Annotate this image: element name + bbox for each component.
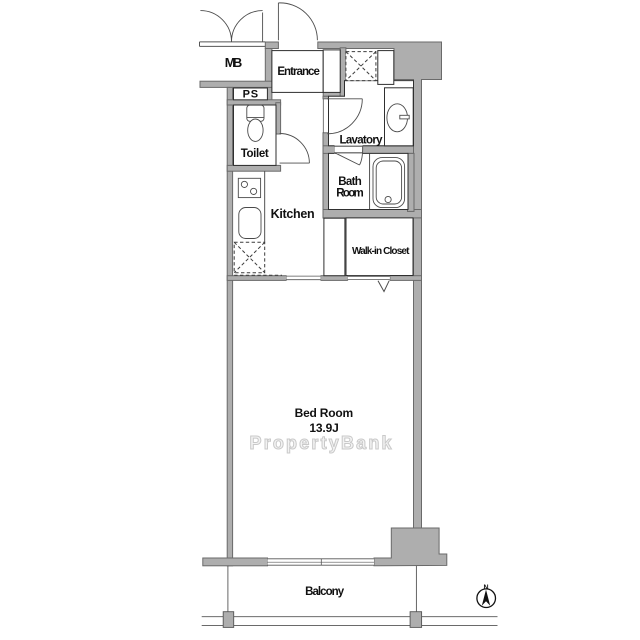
svg-text:PS: PS — [243, 89, 259, 101]
svg-text:Balcony: Balcony — [305, 586, 345, 598]
svg-text:Lavatory: Lavatory — [340, 135, 384, 147]
svg-text:Walk-in Closet: Walk-in Closet — [352, 246, 410, 257]
svg-text:Bed Room: Bed Room — [295, 406, 354, 420]
svg-text:Room: Room — [336, 187, 364, 199]
svg-text:Entrance: Entrance — [277, 66, 320, 78]
svg-text:13.9J: 13.9J — [309, 421, 339, 435]
svg-text:Kitchen: Kitchen — [271, 207, 315, 221]
svg-text:Toilet: Toilet — [241, 148, 269, 160]
svg-text:MB: MB — [225, 55, 243, 70]
svg-text:Bath: Bath — [338, 176, 362, 188]
